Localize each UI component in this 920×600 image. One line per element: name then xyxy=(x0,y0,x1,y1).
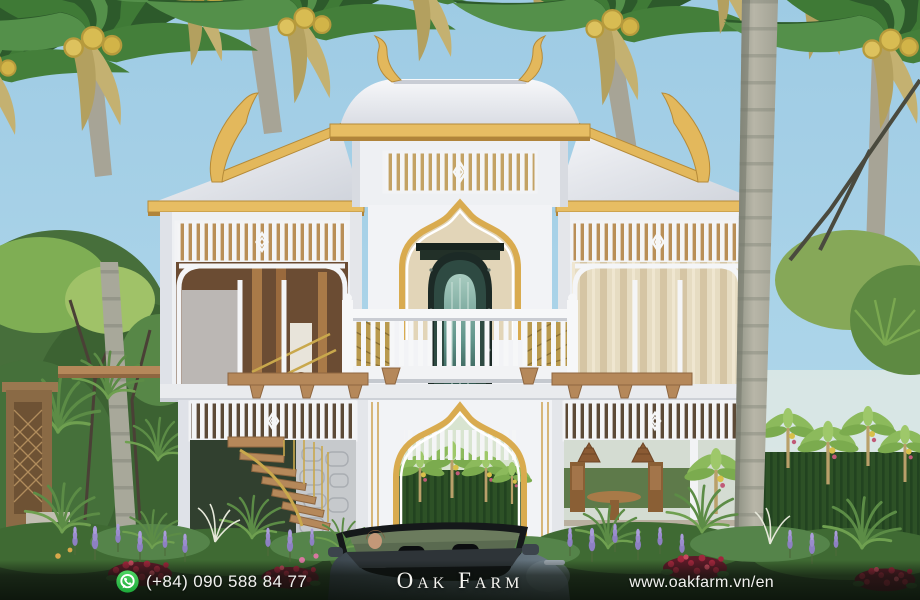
whatsapp-contact: (+84) 090 588 84 77 xyxy=(116,570,307,593)
right-curtain-windows xyxy=(572,222,744,390)
phone-number: (+84) 090 588 84 77 xyxy=(146,572,307,592)
whatsapp-icon xyxy=(116,570,139,593)
left-veranda-interior xyxy=(176,262,348,390)
brand-logo: Oak Farm xyxy=(397,568,524,594)
attic-vent xyxy=(352,141,568,207)
villa-house xyxy=(148,36,768,558)
footer-bar: (+84) 090 588 84 77 Oak Farm www.oakfarm… xyxy=(0,560,920,600)
render-image: (+84) 090 588 84 77 Oak Farm www.oakfarm… xyxy=(0,0,920,600)
villa-scene xyxy=(0,0,920,600)
second-floor xyxy=(160,203,760,395)
website-url: www.oakfarm.vn/en xyxy=(629,574,774,592)
